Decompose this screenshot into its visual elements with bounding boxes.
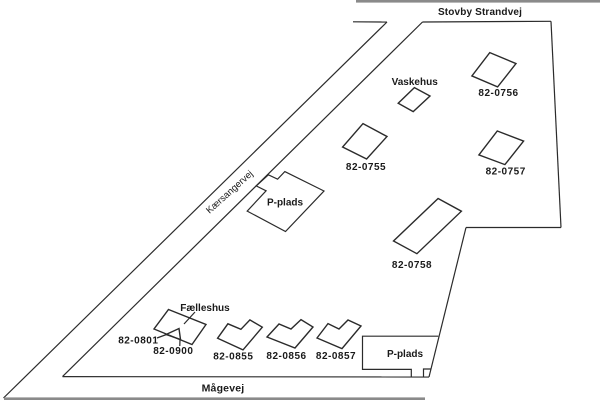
- svg-text:82-0857: 82-0857: [316, 351, 356, 362]
- svg-text:82-0756: 82-0756: [478, 88, 518, 99]
- svg-text:82-0755: 82-0755: [346, 162, 386, 173]
- svg-text:Stovby Strandvej: Stovby Strandvej: [438, 7, 522, 18]
- svg-text:Vaskehus: Vaskehus: [392, 77, 439, 88]
- svg-text:P-plads: P-plads: [387, 349, 424, 360]
- svg-text:P-plads: P-plads: [267, 198, 304, 209]
- svg-text:Mågevej: Mågevej: [202, 383, 245, 395]
- svg-text:82-0757: 82-0757: [486, 166, 526, 177]
- svg-text:82-0856: 82-0856: [266, 351, 306, 362]
- svg-text:82-0758: 82-0758: [392, 260, 432, 271]
- svg-text:82-0855: 82-0855: [213, 352, 253, 363]
- svg-text:82-0801: 82-0801: [118, 336, 158, 347]
- svg-text:Fælleshus: Fælleshus: [180, 303, 230, 314]
- svg-text:82-0900: 82-0900: [153, 346, 193, 357]
